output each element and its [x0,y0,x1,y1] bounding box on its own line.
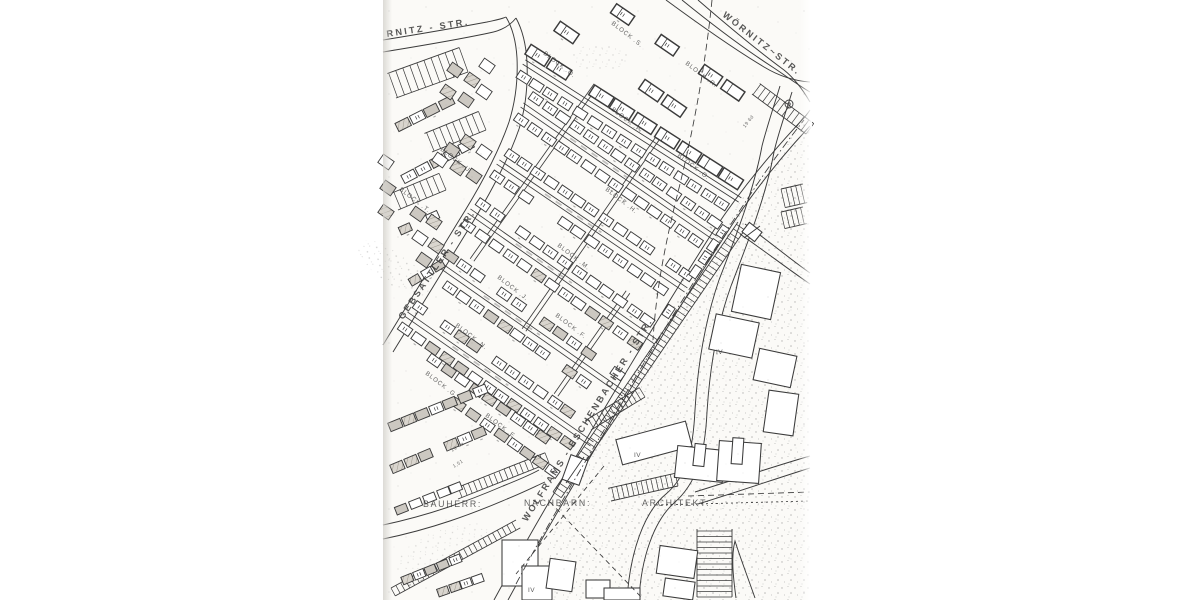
scan-noise-overlay [383,0,810,600]
scanned-site-plan-page: RNITZ - STR. WÖRNITZ~STR. GEBSATTLER - S… [0,0,1200,600]
site-plan-map: RNITZ - STR. WÖRNITZ~STR. GEBSATTLER - S… [0,0,1200,600]
